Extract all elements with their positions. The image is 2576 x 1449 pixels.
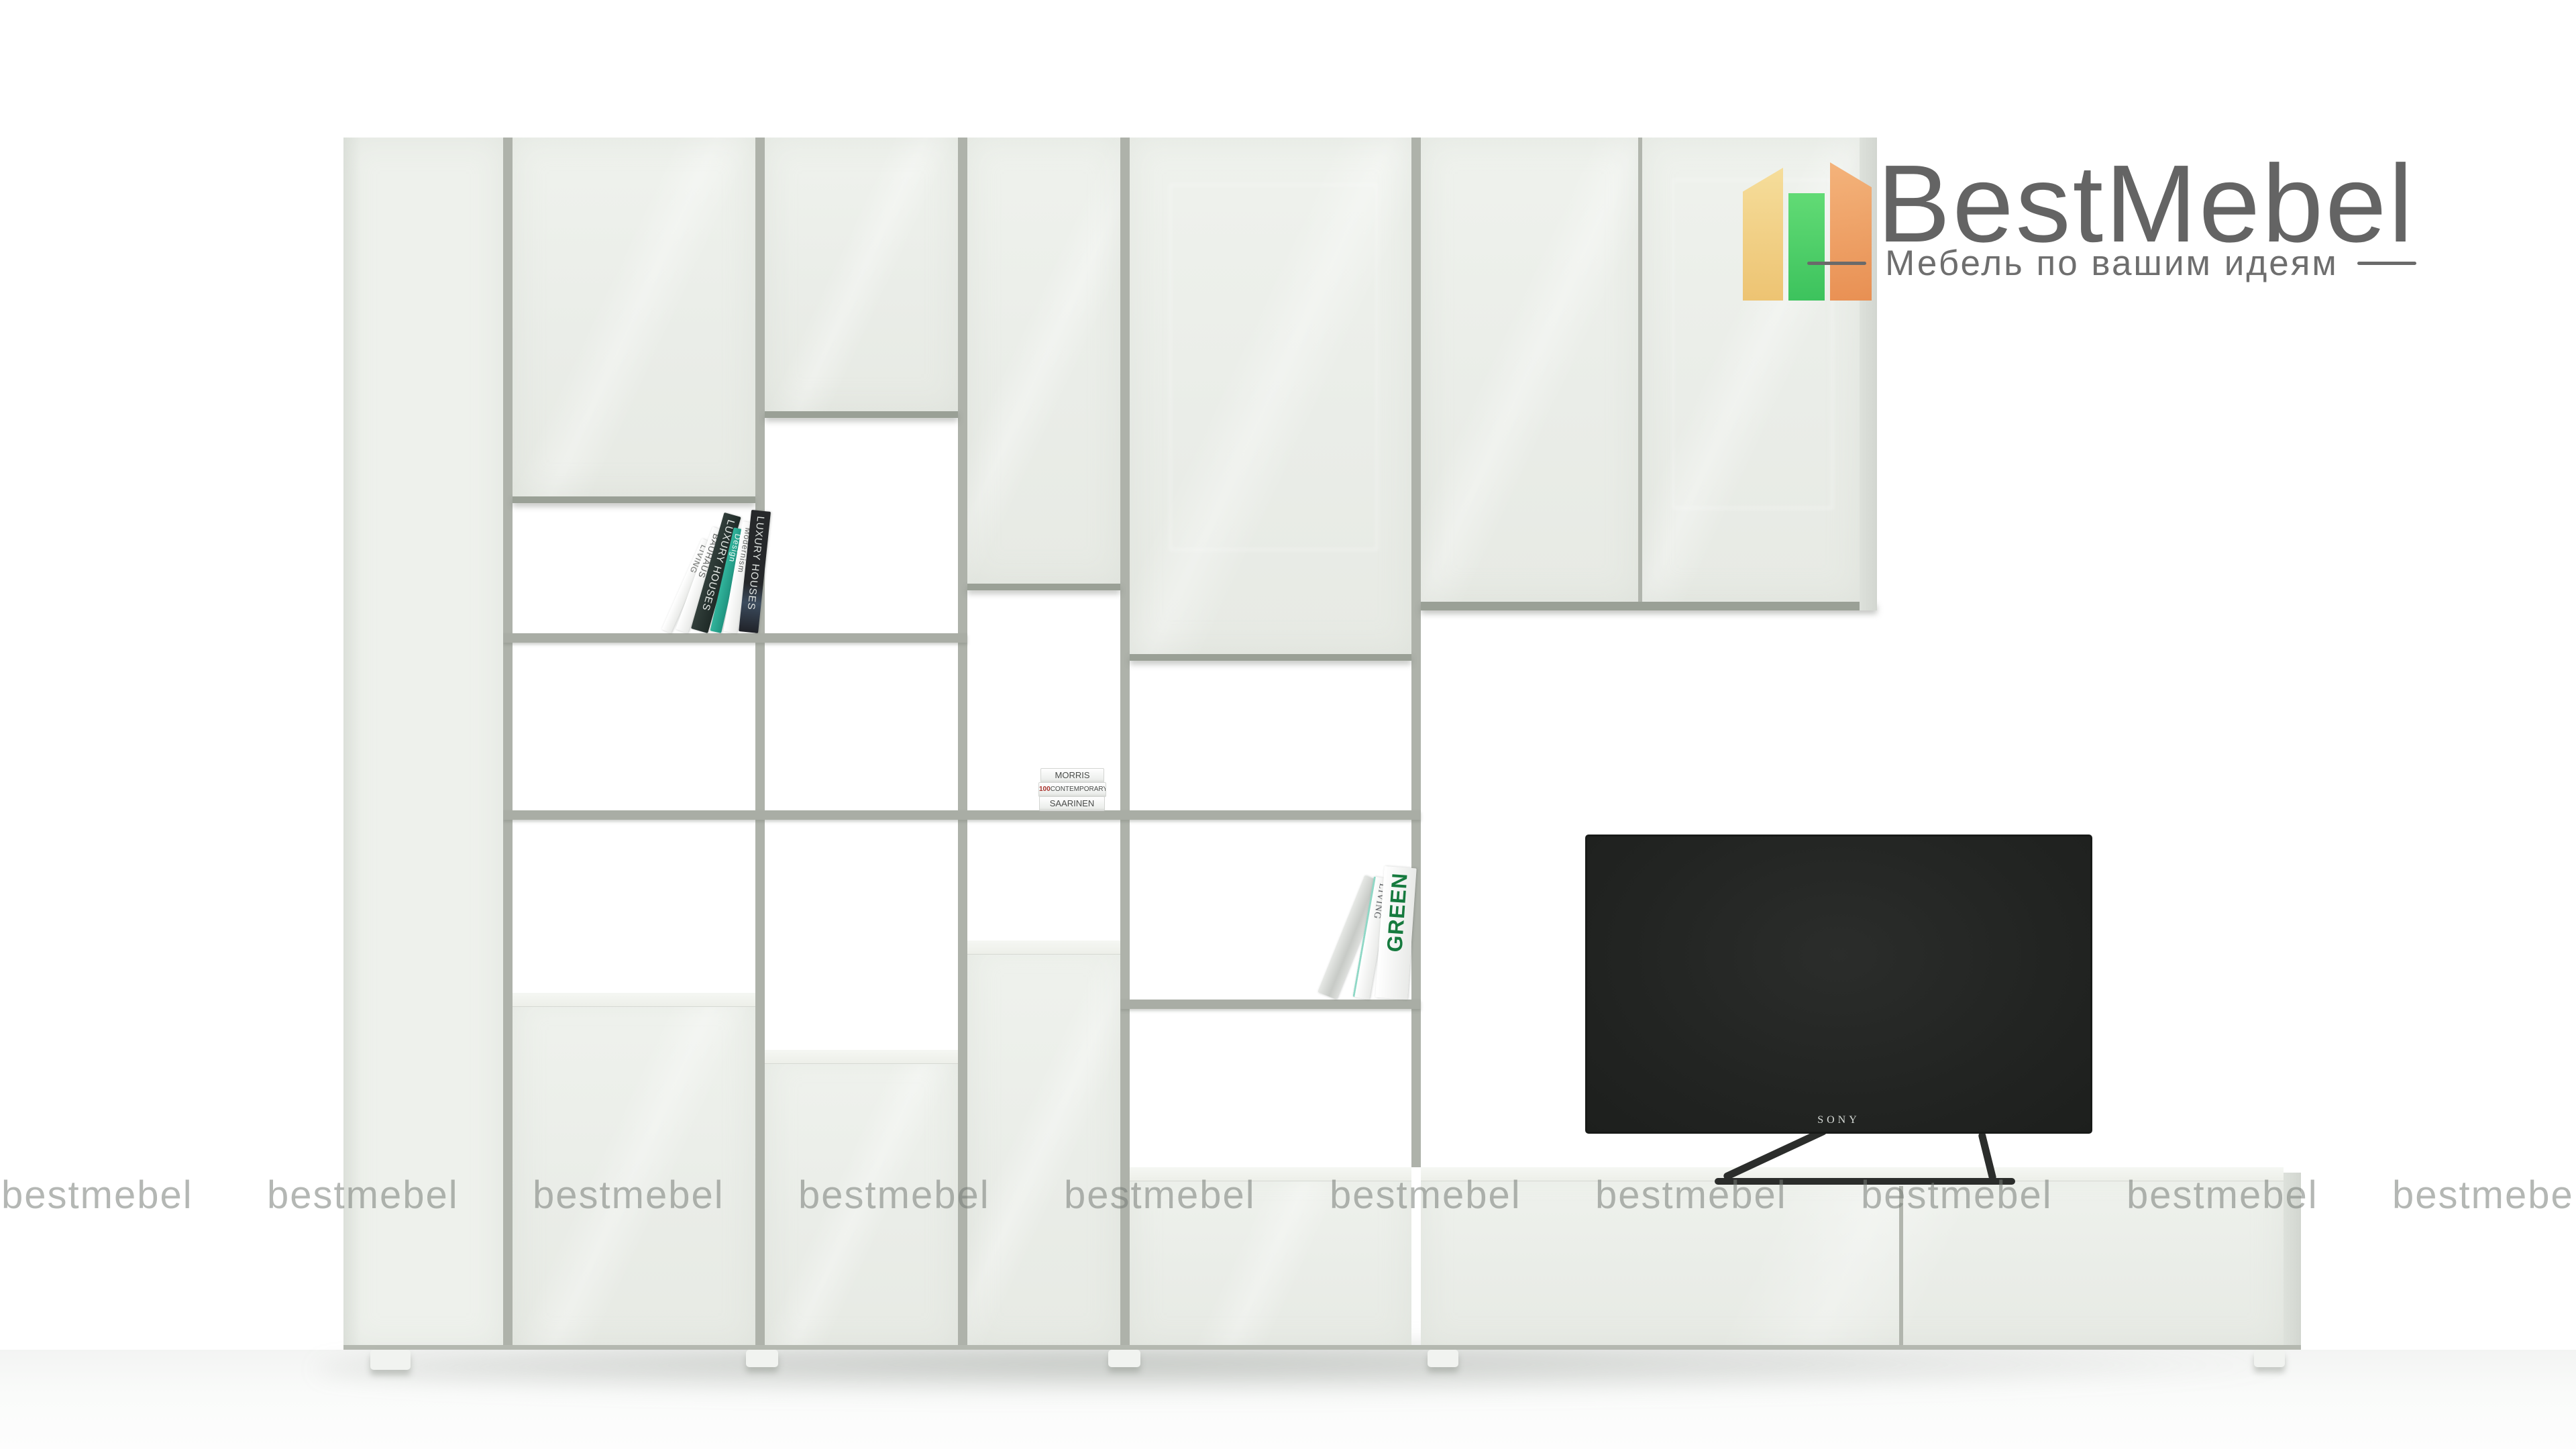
shelf-row1 bbox=[503, 633, 967, 643]
lip-under-door-e bbox=[1130, 654, 1411, 661]
book-spine: GREEN bbox=[1375, 866, 1417, 1000]
stacked-book: MORRIS bbox=[1040, 768, 1104, 783]
stacked-book: 100CONTEMPORARY HOUSES bbox=[1038, 782, 1106, 797]
divider-c-d bbox=[958, 138, 967, 1350]
book-title: MORRIS bbox=[1055, 770, 1090, 780]
stacked-book: SAARINEN bbox=[1039, 796, 1105, 811]
divider-a-b bbox=[503, 138, 513, 1350]
book-title: CONTEMPORARY HOUSES bbox=[1051, 786, 1106, 793]
product-image: LIVING BAUHAUS LUXURY HOUSES Design Mode… bbox=[0, 0, 2576, 1449]
book-title: SAARINEN bbox=[1050, 798, 1094, 808]
book-spine: LIVING bbox=[661, 539, 711, 633]
shelf-row2 bbox=[503, 810, 1421, 820]
cabinet-foot bbox=[2254, 1350, 2285, 1367]
book-stack: MORRIS 100CONTEMPORARY HOUSES SAARINEN bbox=[1038, 768, 1106, 810]
base-edge bbox=[343, 1345, 2301, 1350]
book-spine: BAUHAUS bbox=[676, 527, 724, 633]
book-title: GREEN bbox=[1382, 871, 1412, 953]
book-group-right: LIVING GREEN bbox=[1316, 865, 1411, 1000]
lip-under-door-d bbox=[967, 584, 1120, 590]
upper-door-d bbox=[967, 138, 1120, 584]
cabinet-foot bbox=[1428, 1350, 1458, 1367]
book-title: Design bbox=[727, 533, 743, 563]
tagline-dash-right bbox=[2357, 262, 2416, 265]
lip-under-upper-cabinet bbox=[1421, 602, 1877, 610]
lip-under-door-b bbox=[513, 496, 755, 503]
watermark-text: bestmebel bbox=[2391, 1173, 2576, 1218]
book-title: BAUHAUS bbox=[696, 532, 722, 580]
watermark-text: bestmebel bbox=[1594, 1173, 1860, 1218]
upper-cabinet-door-left bbox=[1421, 138, 1638, 602]
tagline-dash-left bbox=[1807, 262, 1866, 265]
watermark-text: bestmebel bbox=[2125, 1173, 2391, 1218]
book-spine: LIVING bbox=[1352, 876, 1390, 1000]
upper-door-b bbox=[513, 138, 755, 496]
cabinet-foot bbox=[746, 1350, 778, 1367]
lower-door-b bbox=[513, 993, 755, 1350]
wardrobe-tall-door bbox=[343, 138, 503, 1350]
watermark-text: bestmebel bbox=[1328, 1173, 1594, 1218]
upper-door-c bbox=[765, 138, 958, 411]
shelf-row3 bbox=[1120, 1000, 1421, 1009]
logo-tagline: Мебель по вашим идеям bbox=[1885, 243, 2339, 284]
divider-e-wall bbox=[1411, 138, 1421, 1167]
cabinet-foot bbox=[1108, 1350, 1140, 1367]
lip-under-door-c bbox=[765, 411, 958, 418]
divider-b-c bbox=[755, 138, 765, 1350]
book-spine: Design bbox=[710, 527, 745, 633]
book-title: LIVING bbox=[1371, 882, 1387, 920]
book-title-number: 100 bbox=[1039, 786, 1051, 793]
book-spine bbox=[1318, 875, 1383, 1000]
book-group-left: LIVING BAUHAUS LUXURY HOUSES Design Mode… bbox=[661, 510, 761, 633]
book-title: Modernism bbox=[736, 527, 753, 574]
book-spine: LUXURY HOUSES bbox=[691, 513, 741, 633]
upper-door-wide bbox=[1130, 138, 1411, 654]
watermark-text: bestmebel bbox=[797, 1173, 1063, 1218]
logo-tagline-row: Мебель по вашим идеям bbox=[1741, 243, 2482, 284]
book-title: LIVING bbox=[688, 543, 708, 575]
floor-shadow bbox=[315, 1343, 2321, 1395]
watermark-text: bestmebel bbox=[531, 1173, 797, 1218]
tv-screen: SONY bbox=[1585, 835, 2092, 1134]
cabinet-foot bbox=[370, 1350, 411, 1370]
watermark-text: bestmebel bbox=[0, 1173, 266, 1218]
book-title: LUXURY HOUSES bbox=[700, 519, 737, 612]
divider-d-e bbox=[1120, 138, 1130, 1350]
watermark-row: bestmebel bestmebel bestmebel bestmebel … bbox=[0, 1173, 2576, 1218]
book-spine: Modernism bbox=[723, 521, 756, 633]
tv-brand-label: SONY bbox=[1587, 1114, 2090, 1126]
lower-door-d bbox=[967, 941, 1120, 1350]
watermark-text: bestmebel bbox=[1063, 1173, 1328, 1218]
watermark-text: bestmebel bbox=[266, 1173, 531, 1218]
watermark-text: bestmebel bbox=[1860, 1173, 2125, 1218]
